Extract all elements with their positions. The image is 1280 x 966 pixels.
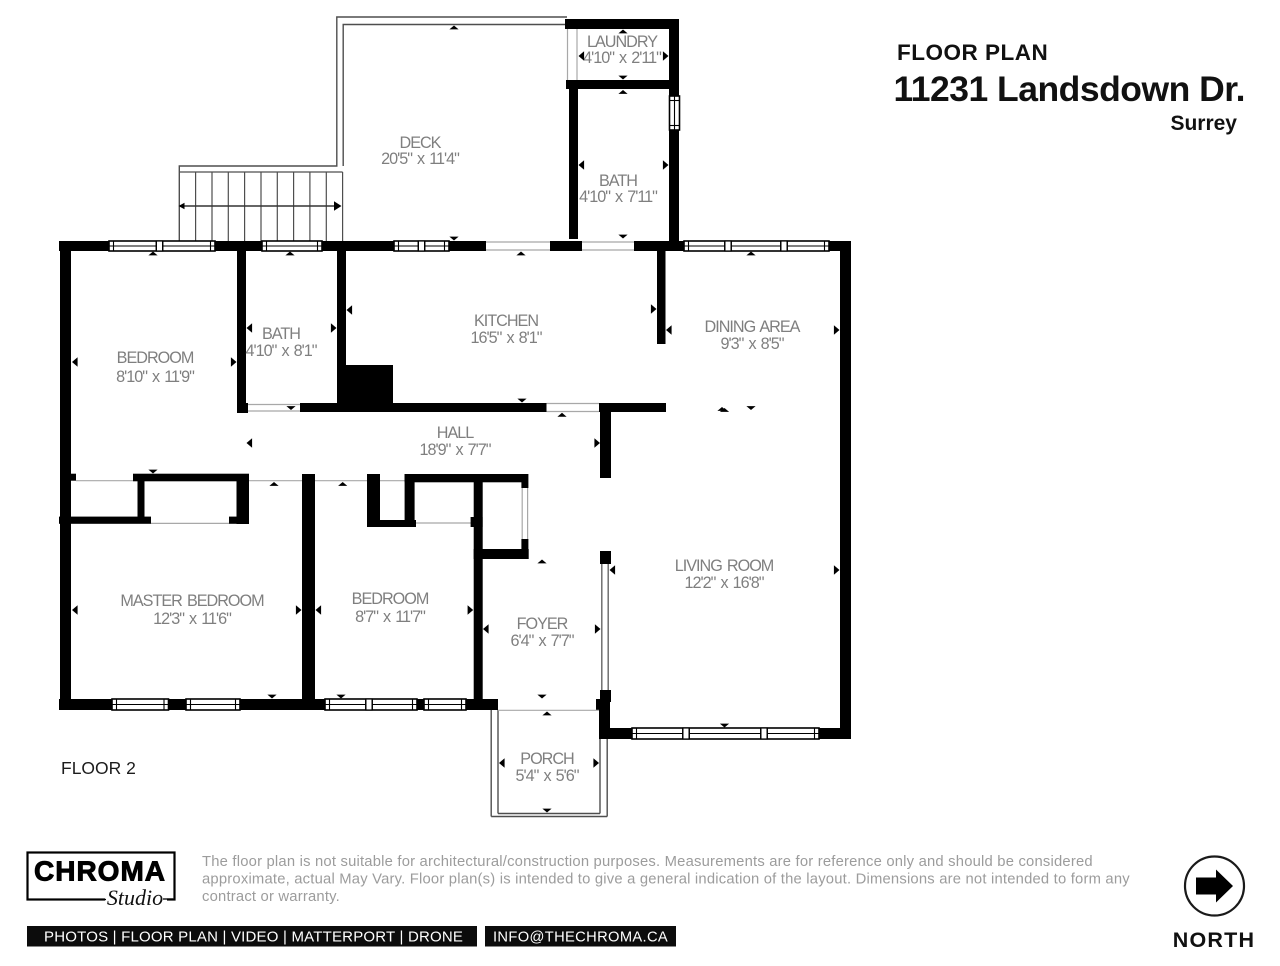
svg-text:6'4" x 7'7": 6'4" x 7'7" — [511, 632, 575, 650]
svg-text:12'3" x 11'6": 12'3" x 11'6" — [153, 610, 232, 628]
svg-text:FLOOR PLAN: FLOOR PLAN — [897, 40, 1048, 65]
svg-text:4'10" x 8'1": 4'10" x 8'1" — [246, 342, 318, 360]
svg-text:Studio: Studio — [107, 885, 163, 910]
svg-text:9'3" x 8'5": 9'3" x 8'5" — [721, 335, 785, 353]
svg-text:FOYER: FOYER — [517, 615, 568, 633]
svg-text:5'4" x 5'6": 5'4" x 5'6" — [516, 767, 580, 785]
svg-text:11231 Landsdown Dr.: 11231 Landsdown Dr. — [893, 69, 1245, 109]
svg-text:NORTH: NORTH — [1173, 928, 1255, 952]
svg-text:The floor plan is not suitable: The floor plan is not suitable for archi… — [202, 854, 1093, 870]
svg-text:CHROMA: CHROMA — [34, 856, 166, 887]
svg-text:FLOOR 2: FLOOR 2 — [61, 758, 136, 778]
svg-text:KITCHEN: KITCHEN — [474, 312, 538, 330]
svg-text:approximate, actual May Vary.: approximate, actual May Vary. Floor plan… — [202, 872, 1130, 888]
svg-text:DINING AREA: DINING AREA — [705, 318, 801, 336]
svg-text:INFO@THECHROMA.CA: INFO@THECHROMA.CA — [493, 930, 668, 946]
svg-text:LIVING ROOM: LIVING ROOM — [675, 557, 774, 575]
svg-text:BEDROOM: BEDROOM — [117, 349, 194, 367]
svg-text:18'9" x 7'7": 18'9" x 7'7" — [420, 441, 492, 459]
svg-text:MASTER BEDROOM: MASTER BEDROOM — [120, 592, 264, 610]
svg-text:16'5" x 8'1": 16'5" x 8'1" — [471, 329, 543, 347]
svg-text:PORCH: PORCH — [520, 750, 574, 768]
svg-text:BATH: BATH — [262, 325, 300, 343]
svg-text:12'2" x 16'8": 12'2" x 16'8" — [685, 574, 765, 592]
svg-text:8'10" x 11'9": 8'10" x 11'9" — [116, 368, 195, 386]
svg-text:4'10" x 7'11": 4'10" x 7'11" — [579, 188, 658, 206]
svg-text:contract or warranty.: contract or warranty. — [202, 889, 340, 905]
svg-text:Surrey: Surrey — [1170, 112, 1237, 135]
svg-text:20'5" x 11'4": 20'5" x 11'4" — [381, 150, 460, 168]
svg-text:PHOTOS | FLOOR PLAN | VIDEO |: PHOTOS | FLOOR PLAN | VIDEO | MATTERPORT… — [44, 929, 463, 946]
svg-text:BEDROOM: BEDROOM — [352, 590, 429, 608]
svg-text:4'10" x 2'11": 4'10" x 2'11" — [583, 49, 662, 67]
svg-text:HALL: HALL — [437, 424, 474, 442]
svg-text:8'7" x 11'7": 8'7" x 11'7" — [355, 608, 426, 626]
